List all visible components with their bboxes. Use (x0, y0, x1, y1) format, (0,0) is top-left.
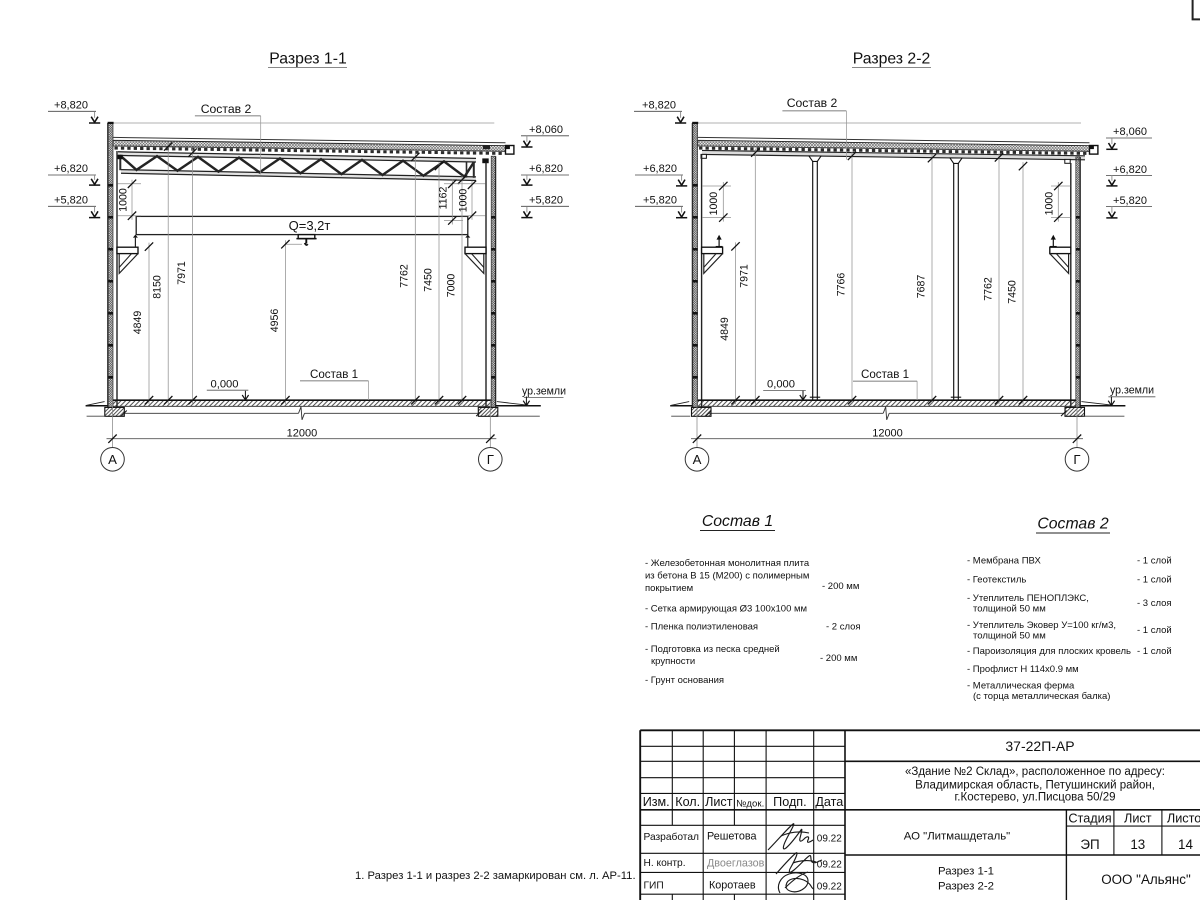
svg-text:крупности: крупности (651, 656, 695, 667)
svg-text:4849: 4849 (132, 311, 144, 335)
svg-text:4849: 4849 (719, 317, 731, 341)
svg-text:ур.земли: ур.земли (1110, 385, 1154, 397)
svg-text:7000: 7000 (445, 274, 457, 298)
svg-text:Состав 1: Состав 1 (861, 368, 909, 381)
svg-text:А: А (693, 452, 702, 467)
svg-text:+6,820: +6,820 (643, 163, 677, 175)
svg-text:- 3 слоя: - 3 слоя (1137, 598, 1172, 609)
svg-text:+6,820: +6,820 (1113, 164, 1147, 176)
svg-text:- 1 слой: - 1 слой (1137, 646, 1172, 657)
svg-text:Состав 1: Состав 1 (310, 368, 358, 381)
svg-text:13: 13 (1130, 837, 1145, 852)
svg-text:Г: Г (1073, 452, 1080, 467)
svg-text:Состав 2: Состав 2 (1037, 516, 1108, 533)
svg-text:Лист: Лист (705, 795, 733, 809)
svg-text:Г: Г (487, 452, 494, 467)
svg-text:+5,820: +5,820 (1113, 195, 1147, 207)
svg-text:Состав 2: Состав 2 (201, 102, 252, 116)
svg-text:толщиной 50 мм: толщиной 50 мм (973, 631, 1046, 642)
svg-text:8150: 8150 (152, 275, 164, 299)
svg-text:1162: 1162 (437, 187, 449, 210)
svg-text:Состав 1: Состав 1 (702, 513, 773, 530)
svg-text:Разрез 1-1: Разрез 1-1 (269, 51, 347, 68)
svg-text:ур.земли: ур.земли (522, 386, 566, 398)
svg-text:+8,820: +8,820 (642, 100, 676, 112)
svg-text:покрытием: покрытием (645, 583, 693, 594)
svg-text:- Пароизоляция для плоских кро: - Пароизоляция для плоских кровель (967, 646, 1131, 657)
svg-text:14: 14 (1178, 837, 1193, 852)
svg-text:- Сетка армирующая Ø3 100х100: - Сетка армирующая Ø3 100х100 мм (645, 604, 807, 615)
svg-text:АО "Литмашдеталь": АО "Литмашдеталь" (904, 831, 1010, 843)
svg-text:12000: 12000 (287, 427, 318, 439)
svg-text:1. Разрез 1-1 и разрез 2-2 зам: 1. Разрез 1-1 и разрез 2-2 замаркирован … (355, 870, 636, 882)
svg-text:- Металлическая ферма: - Металлическая ферма (967, 681, 1075, 692)
svg-text:Подп.: Подп. (773, 795, 806, 809)
svg-text:- 1 слой: - 1 слой (1137, 556, 1172, 567)
svg-text:09.22: 09.22 (817, 834, 842, 845)
svg-text:№док.: №док. (736, 799, 764, 810)
svg-text:- Грунт основания: - Грунт основания (645, 675, 724, 686)
svg-text:- 1 слой: - 1 слой (1137, 625, 1172, 636)
svg-text:0,000: 0,000 (767, 378, 795, 390)
svg-text:09.22: 09.22 (817, 882, 842, 893)
svg-text:г.Костерево, ул.Писцова 50/29: г.Костерево, ул.Писцова 50/29 (955, 791, 1116, 803)
svg-text:4956: 4956 (269, 309, 281, 333)
svg-text:1000: 1000 (457, 189, 469, 213)
svg-text:Кол.: Кол. (675, 795, 700, 809)
svg-text:- Геотекстиль: - Геотекстиль (967, 575, 1026, 586)
svg-text:Двоеглазов: Двоеглазов (707, 858, 765, 870)
svg-text:7762: 7762 (399, 264, 411, 288)
svg-text:Владимирская область, Петушинс: Владимирская область, Петушинский район, (915, 779, 1155, 791)
svg-text:7971: 7971 (739, 264, 751, 288)
svg-text:37-22П-АР: 37-22П-АР (1005, 738, 1074, 754)
svg-text:(с торца металлическая балка): (с торца металлическая балка) (973, 691, 1110, 702)
svg-text:- Подготовка из песка средней: - Подготовка из песка средней (645, 644, 780, 655)
svg-text:Разрез 2-2: Разрез 2-2 (853, 51, 931, 68)
svg-text:+5,820: +5,820 (54, 195, 88, 207)
svg-text:+8,820: +8,820 (54, 100, 88, 112)
svg-text:«Здание №2 Склад», расположенн: «Здание №2 Склад», расположенное по адре… (905, 766, 1165, 778)
svg-text:7766: 7766 (835, 273, 847, 297)
svg-text:Решетова: Решетова (707, 831, 757, 843)
svg-text:- Профлист Н 114х0.9 мм: - Профлист Н 114х0.9 мм (967, 664, 1079, 675)
svg-text:ГИП: ГИП (644, 881, 664, 892)
svg-text:А: А (108, 452, 117, 467)
svg-text:7687: 7687 (915, 275, 927, 299)
svg-text:Разрез 2-2: Разрез 2-2 (938, 881, 994, 893)
svg-text:Q=3,2т: Q=3,2т (289, 218, 331, 233)
svg-text:7450: 7450 (422, 268, 434, 292)
svg-text:ЭП: ЭП (1080, 837, 1099, 852)
svg-text:7762: 7762 (982, 277, 994, 301)
svg-text:+6,820: +6,820 (529, 163, 563, 175)
svg-text:- Пленка полиэтиленовая: - Пленка полиэтиленовая (645, 622, 758, 633)
svg-text:- Утеплитель Эковер У=100 кг/м: - Утеплитель Эковер У=100 кг/м3, (967, 620, 1116, 631)
svg-text:7971: 7971 (176, 261, 188, 285)
svg-text:+8,060: +8,060 (1113, 126, 1147, 138)
svg-text:из бетона В 15 (М200) с полиме: из бетона В 15 (М200) с полимерным (645, 571, 809, 582)
svg-text:12000: 12000 (872, 427, 903, 439)
svg-text:7450: 7450 (1006, 280, 1018, 304)
svg-text:Дата: Дата (815, 795, 843, 809)
svg-text:+8,060: +8,060 (529, 124, 563, 136)
svg-text:- Мембрана ПВХ: - Мембрана ПВХ (967, 556, 1041, 567)
svg-text:- 200 мм: - 200 мм (822, 581, 859, 592)
svg-text:Лист: Лист (1124, 812, 1152, 826)
svg-text:Разрез 1-1: Разрез 1-1 (938, 866, 994, 878)
svg-text:Изм.: Изм. (643, 795, 670, 809)
svg-text:- 1 слой: - 1 слой (1137, 575, 1172, 586)
svg-text:Стадия: Стадия (1068, 812, 1111, 826)
svg-text:толщиной 50 мм: толщиной 50 мм (973, 604, 1046, 615)
svg-text:0,000: 0,000 (211, 378, 239, 390)
svg-text:Состав 2: Состав 2 (787, 96, 838, 110)
svg-text:+5,820: +5,820 (529, 195, 563, 207)
svg-text:Листов: Листов (1167, 812, 1200, 826)
svg-text:- 2 слоя: - 2 слоя (826, 622, 861, 633)
svg-text:1000: 1000 (117, 188, 129, 212)
svg-text:- Утеплитель ПЕНОПЛЭКС,: - Утеплитель ПЕНОПЛЭКС, (967, 593, 1089, 604)
svg-text:Коротаев: Коротаев (709, 880, 756, 892)
svg-text:+6,820: +6,820 (54, 163, 88, 175)
svg-text:ООО "Альянс": ООО "Альянс" (1101, 872, 1191, 887)
svg-text:Разработал: Разработал (644, 831, 700, 843)
svg-text:- Железобетонная монолитная п: - Железобетонная монолитная плита (645, 558, 810, 569)
svg-text:1000: 1000 (708, 192, 720, 216)
svg-text:1000: 1000 (1043, 192, 1055, 216)
svg-text:- 200 мм: - 200 мм (820, 653, 857, 664)
svg-text:+5,820: +5,820 (643, 195, 677, 207)
svg-text:Н. контр.: Н. контр. (644, 858, 686, 869)
